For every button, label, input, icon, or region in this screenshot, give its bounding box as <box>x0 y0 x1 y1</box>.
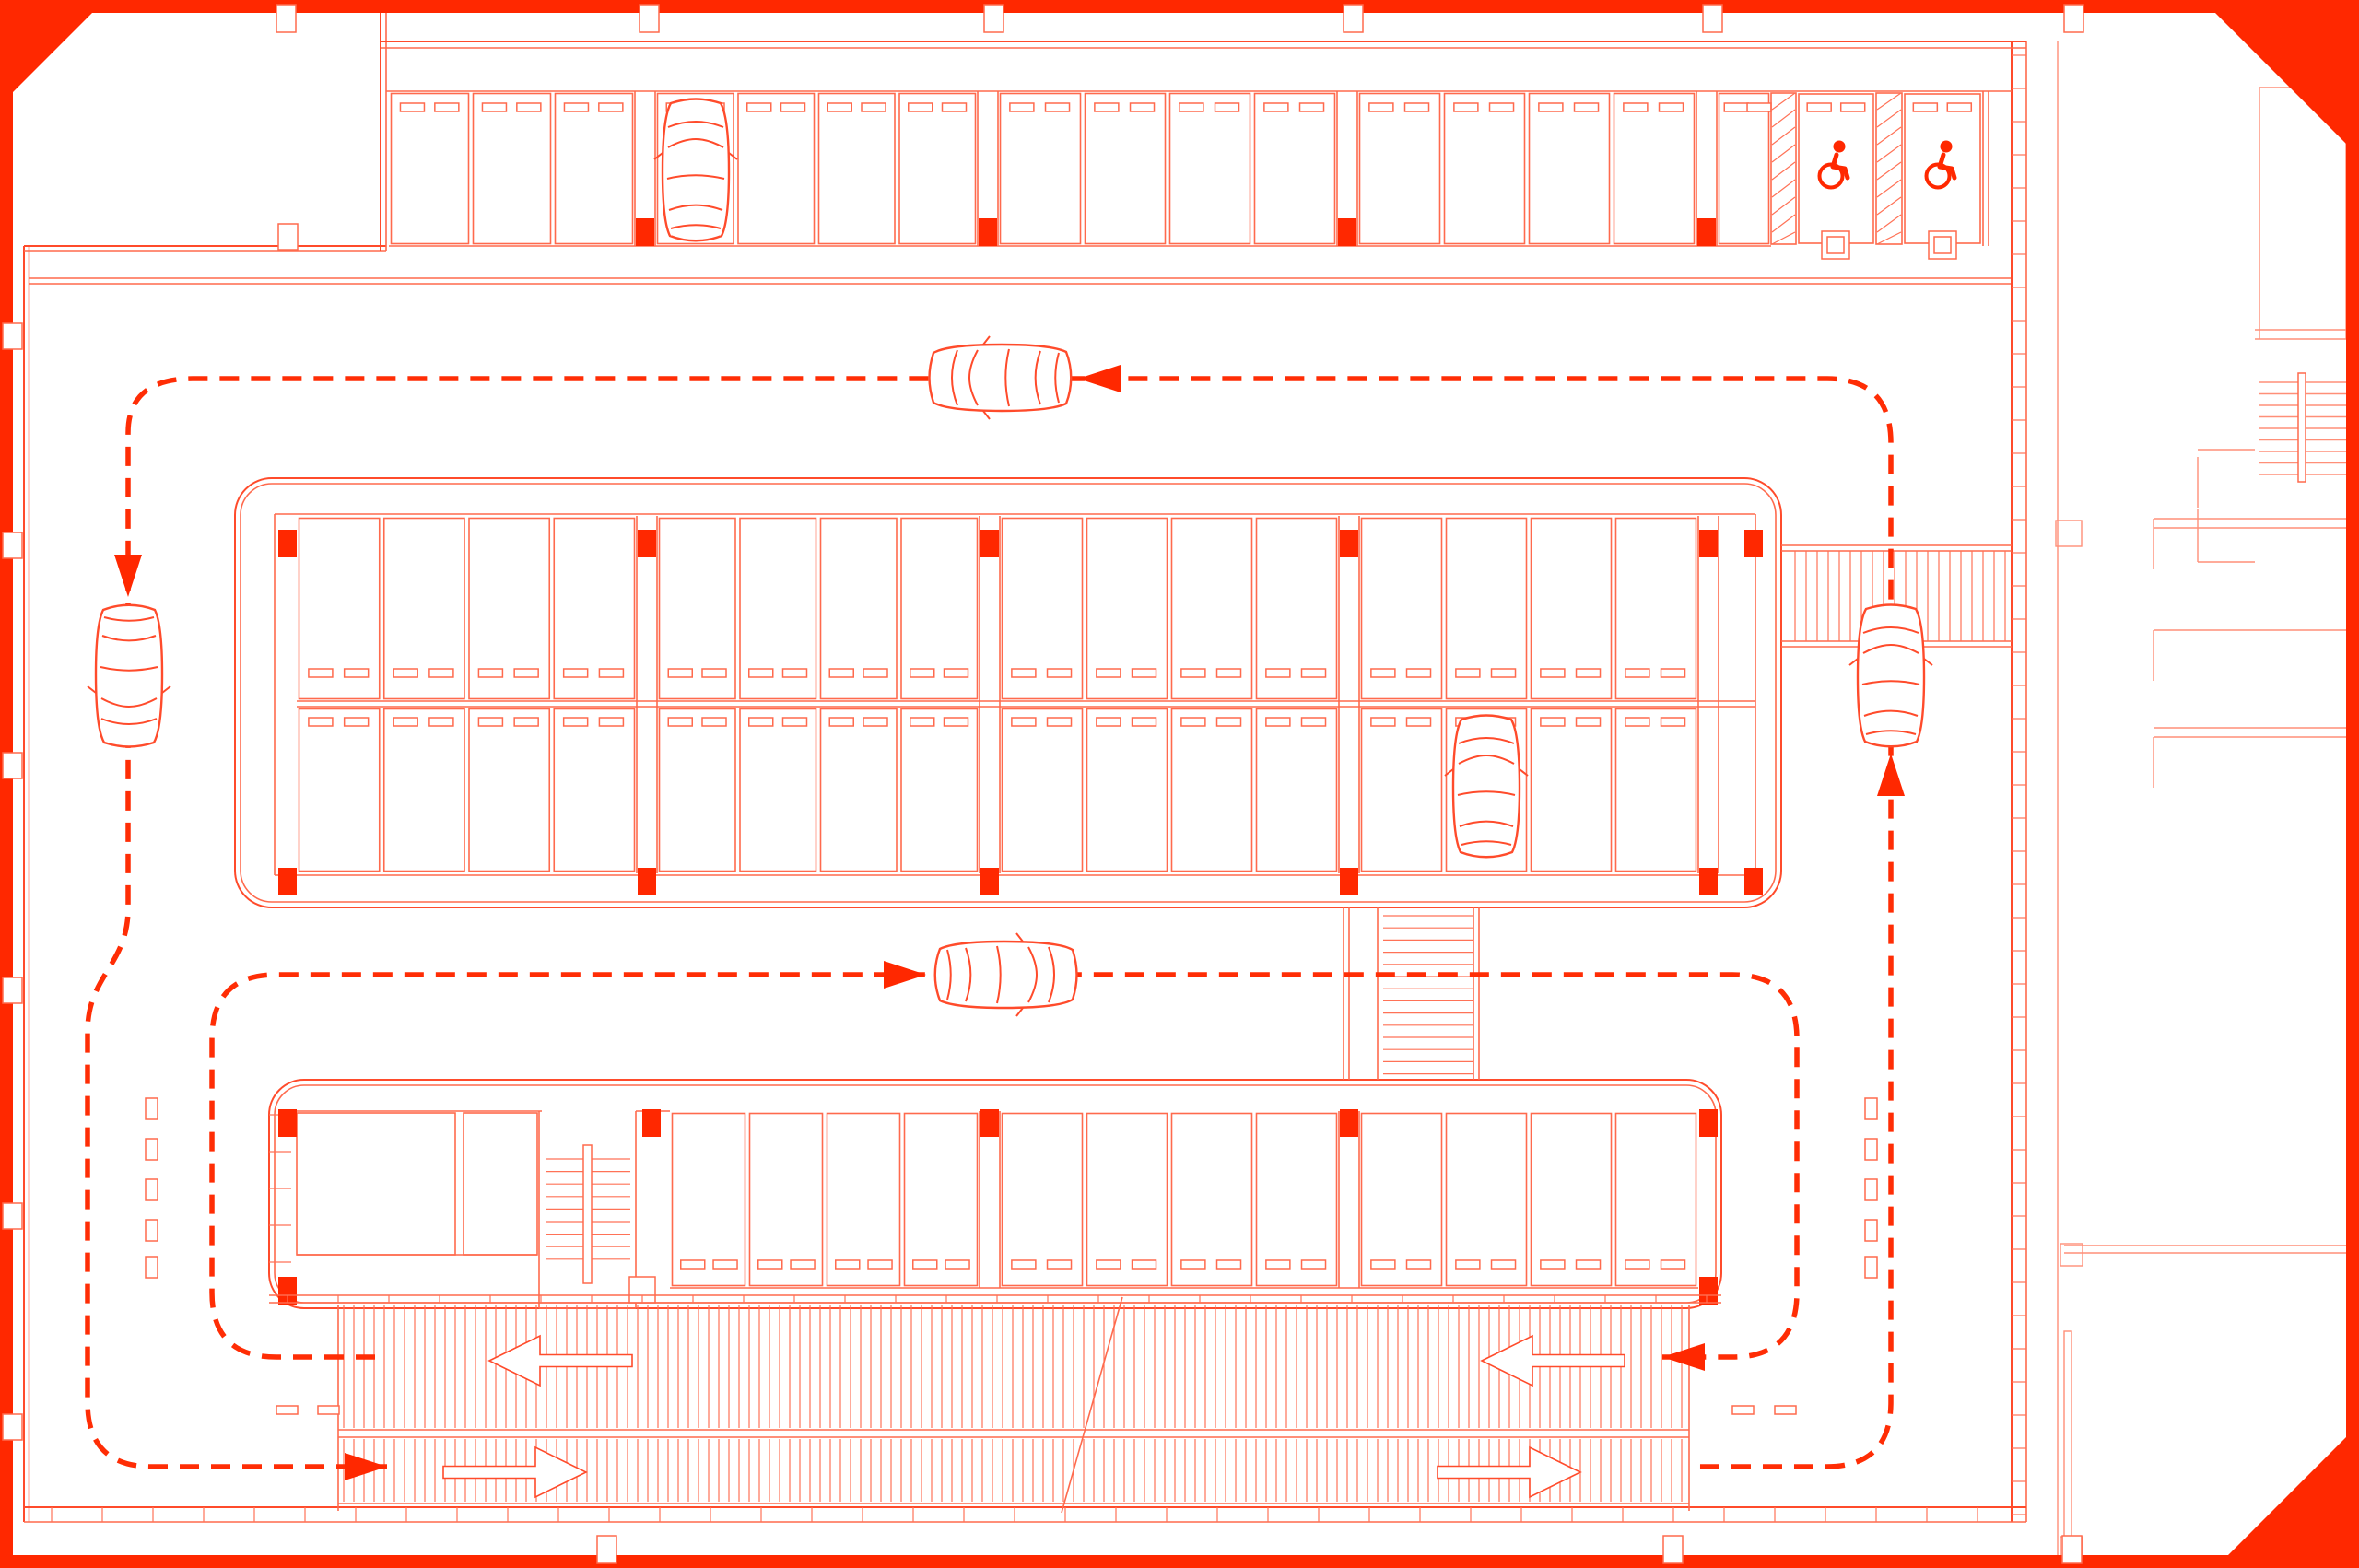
parked-car <box>1445 716 1528 858</box>
structural-column <box>980 530 999 557</box>
structural-column <box>1340 530 1358 557</box>
structural-column <box>1338 218 1356 246</box>
structural-column <box>1699 530 1718 557</box>
structural-column <box>980 1109 999 1137</box>
structural-column <box>636 218 654 246</box>
structural-column <box>638 868 656 895</box>
parking-floor-plan <box>0 0 2359 1568</box>
structural-column <box>1699 868 1718 895</box>
structural-column <box>638 530 656 557</box>
structural-column <box>1699 1277 1718 1305</box>
structural-column <box>1744 868 1763 895</box>
structural-column <box>979 218 997 246</box>
structural-column <box>1699 1109 1718 1137</box>
parked-car <box>654 99 737 241</box>
floor-plan-canvas <box>0 0 2359 1568</box>
structural-column <box>1697 218 1716 246</box>
structural-column <box>278 868 297 895</box>
moving-car <box>1849 605 1932 747</box>
structural-column <box>1340 868 1358 895</box>
structural-column <box>642 1109 661 1137</box>
moving-car <box>930 336 1072 419</box>
structural-column <box>278 530 297 557</box>
moving-car <box>935 933 1077 1016</box>
structural-column <box>1340 1109 1358 1137</box>
moving-car <box>88 605 170 747</box>
structural-column <box>1744 530 1763 557</box>
structural-column <box>980 868 999 895</box>
structural-column <box>278 1109 297 1137</box>
